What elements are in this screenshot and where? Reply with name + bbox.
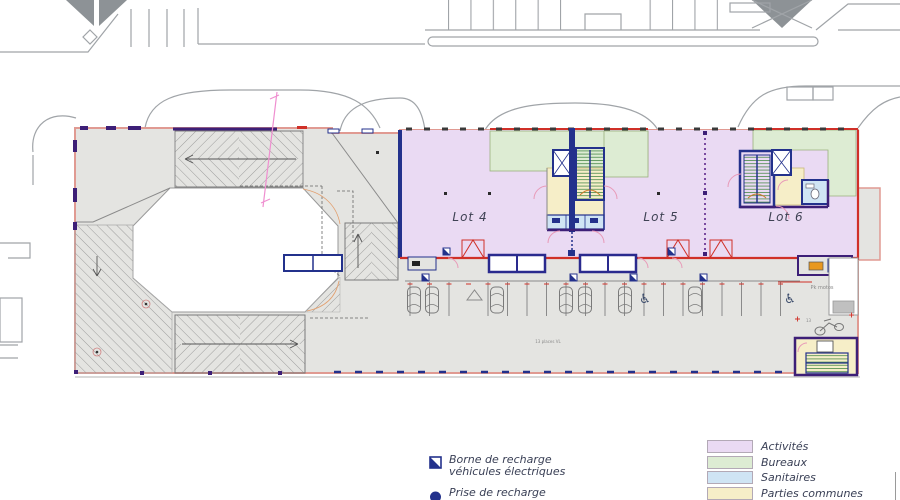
courtyard-octagon <box>133 188 338 312</box>
site-left-features <box>0 116 76 358</box>
parties-communes-label: Parties communes <box>761 487 863 500</box>
site-parking-ticks-2 <box>648 0 718 30</box>
legend-item-borne: Borne de recharge véhicules électriques <box>429 454 565 478</box>
legend-item-bureaux: Bureaux <box>707 455 863 471</box>
legend-borne-label: Borne de recharge véhicules électriques <box>449 454 565 478</box>
site-marker-diamond <box>83 30 97 44</box>
lot6-label: Lot 6 <box>768 210 803 224</box>
site-kerb-left-court <box>145 90 380 128</box>
moto-parking-label: Pk motos <box>810 285 833 291</box>
borne-icon <box>700 274 707 281</box>
right-wing <box>858 188 880 260</box>
floor-plan-page: Lot 4 Lot 5 Lot 6 <box>0 0 900 500</box>
activites-swatch <box>707 440 753 453</box>
borne-recharge-icon <box>429 456 442 469</box>
page-edge-mark <box>895 472 896 500</box>
borne-icon <box>630 274 637 281</box>
borne-icon <box>570 274 577 281</box>
legend-zones: Activités Bureaux Sanitaires Parties com… <box>707 439 863 500</box>
sanitaires-swatch <box>707 471 753 484</box>
borne-icon <box>668 248 675 255</box>
sanitaires-label: Sanitaires <box>761 471 816 484</box>
lot5-label: Lot 5 <box>643 210 678 224</box>
adjacent-roof-left <box>66 0 127 26</box>
activites-label: Activités <box>761 440 808 453</box>
toilet-icon <box>811 189 819 199</box>
moto-count-label: 13 <box>806 318 812 323</box>
canopy-arc-2 <box>485 103 658 130</box>
floor-plan-canvas: Lot 4 Lot 5 Lot 6 <box>0 0 900 500</box>
exit-stair-room <box>795 338 857 375</box>
legend-item-activites: Activités <box>707 439 863 455</box>
legend-prise-label: Prise de recharge <box>449 487 546 499</box>
site-median <box>428 37 818 46</box>
ramp-hatch-top <box>175 131 239 159</box>
parties-communes-swatch <box>707 487 753 500</box>
adjacent-roof-right <box>752 0 900 30</box>
site-parking-ticks-1 <box>430 0 580 30</box>
legend-item-prise: Prise de recharge <box>429 487 565 500</box>
legend-item-parties-communes: Parties communes <box>707 486 863 500</box>
handicap-icon: ♿ <box>784 292 796 307</box>
bureaux-swatch <box>707 456 753 469</box>
parking-count-label: 13 places VL <box>535 339 561 344</box>
handicap-icon: ♿ <box>639 292 651 307</box>
borne-icon <box>422 274 429 281</box>
site-left-block <box>0 298 22 342</box>
lot4-label: Lot 4 <box>452 210 487 224</box>
bureaux-label: Bureaux <box>761 456 807 469</box>
canopy-arc-1 <box>340 98 425 131</box>
legend-item-sanitaires: Sanitaires <box>707 470 863 486</box>
borne-icon <box>443 248 450 255</box>
wall-lot4-west <box>398 130 402 258</box>
legend-symbols: Borne de recharge véhicules électriques … <box>429 454 565 500</box>
prise-recharge-icon <box>429 489 442 500</box>
wall-lot4-lot5 <box>569 128 575 232</box>
site-road-left <box>0 8 425 52</box>
ramp-hatch-bottom <box>175 315 240 344</box>
site-road-curve-right <box>738 86 900 128</box>
